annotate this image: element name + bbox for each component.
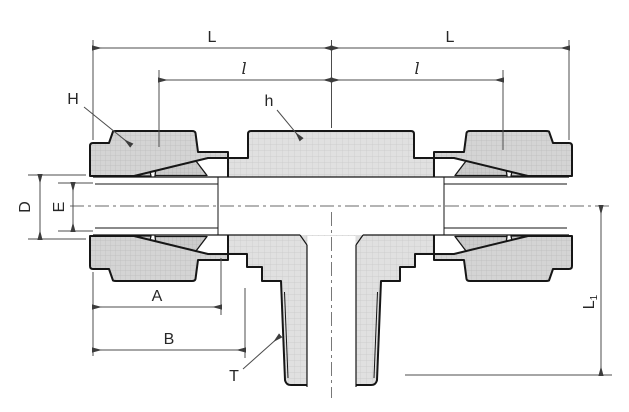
dim-label-E: E: [51, 202, 68, 213]
leader-label-T: T: [229, 368, 239, 385]
dim-label-L1-main: L: [581, 300, 598, 309]
leader-line-T: [243, 336, 280, 369]
tee-fitting-technical-drawing: L L l l H h D E A B T L1: [0, 0, 629, 412]
tee-fitting-drawing-page: L L l l H h D E A B T L1: [0, 0, 629, 412]
leader-label-h: h: [265, 93, 274, 110]
dim-label-B: B: [164, 331, 175, 348]
leader-line-H: [84, 107, 131, 145]
dim-label-L1-subscript: 1: [589, 294, 600, 300]
dim-label-L-left: L: [208, 29, 217, 46]
dim-label-D: D: [17, 201, 34, 213]
nut-lower-section: [90, 236, 228, 281]
dim-label-l-left: l: [241, 59, 246, 78]
dim-label-l-right: l: [414, 59, 419, 78]
dim-label-A: A: [152, 288, 163, 305]
dim-label-L1: L1: [581, 294, 600, 309]
dim-label-L-right: L: [446, 29, 455, 46]
leader-label-H: H: [67, 91, 79, 108]
